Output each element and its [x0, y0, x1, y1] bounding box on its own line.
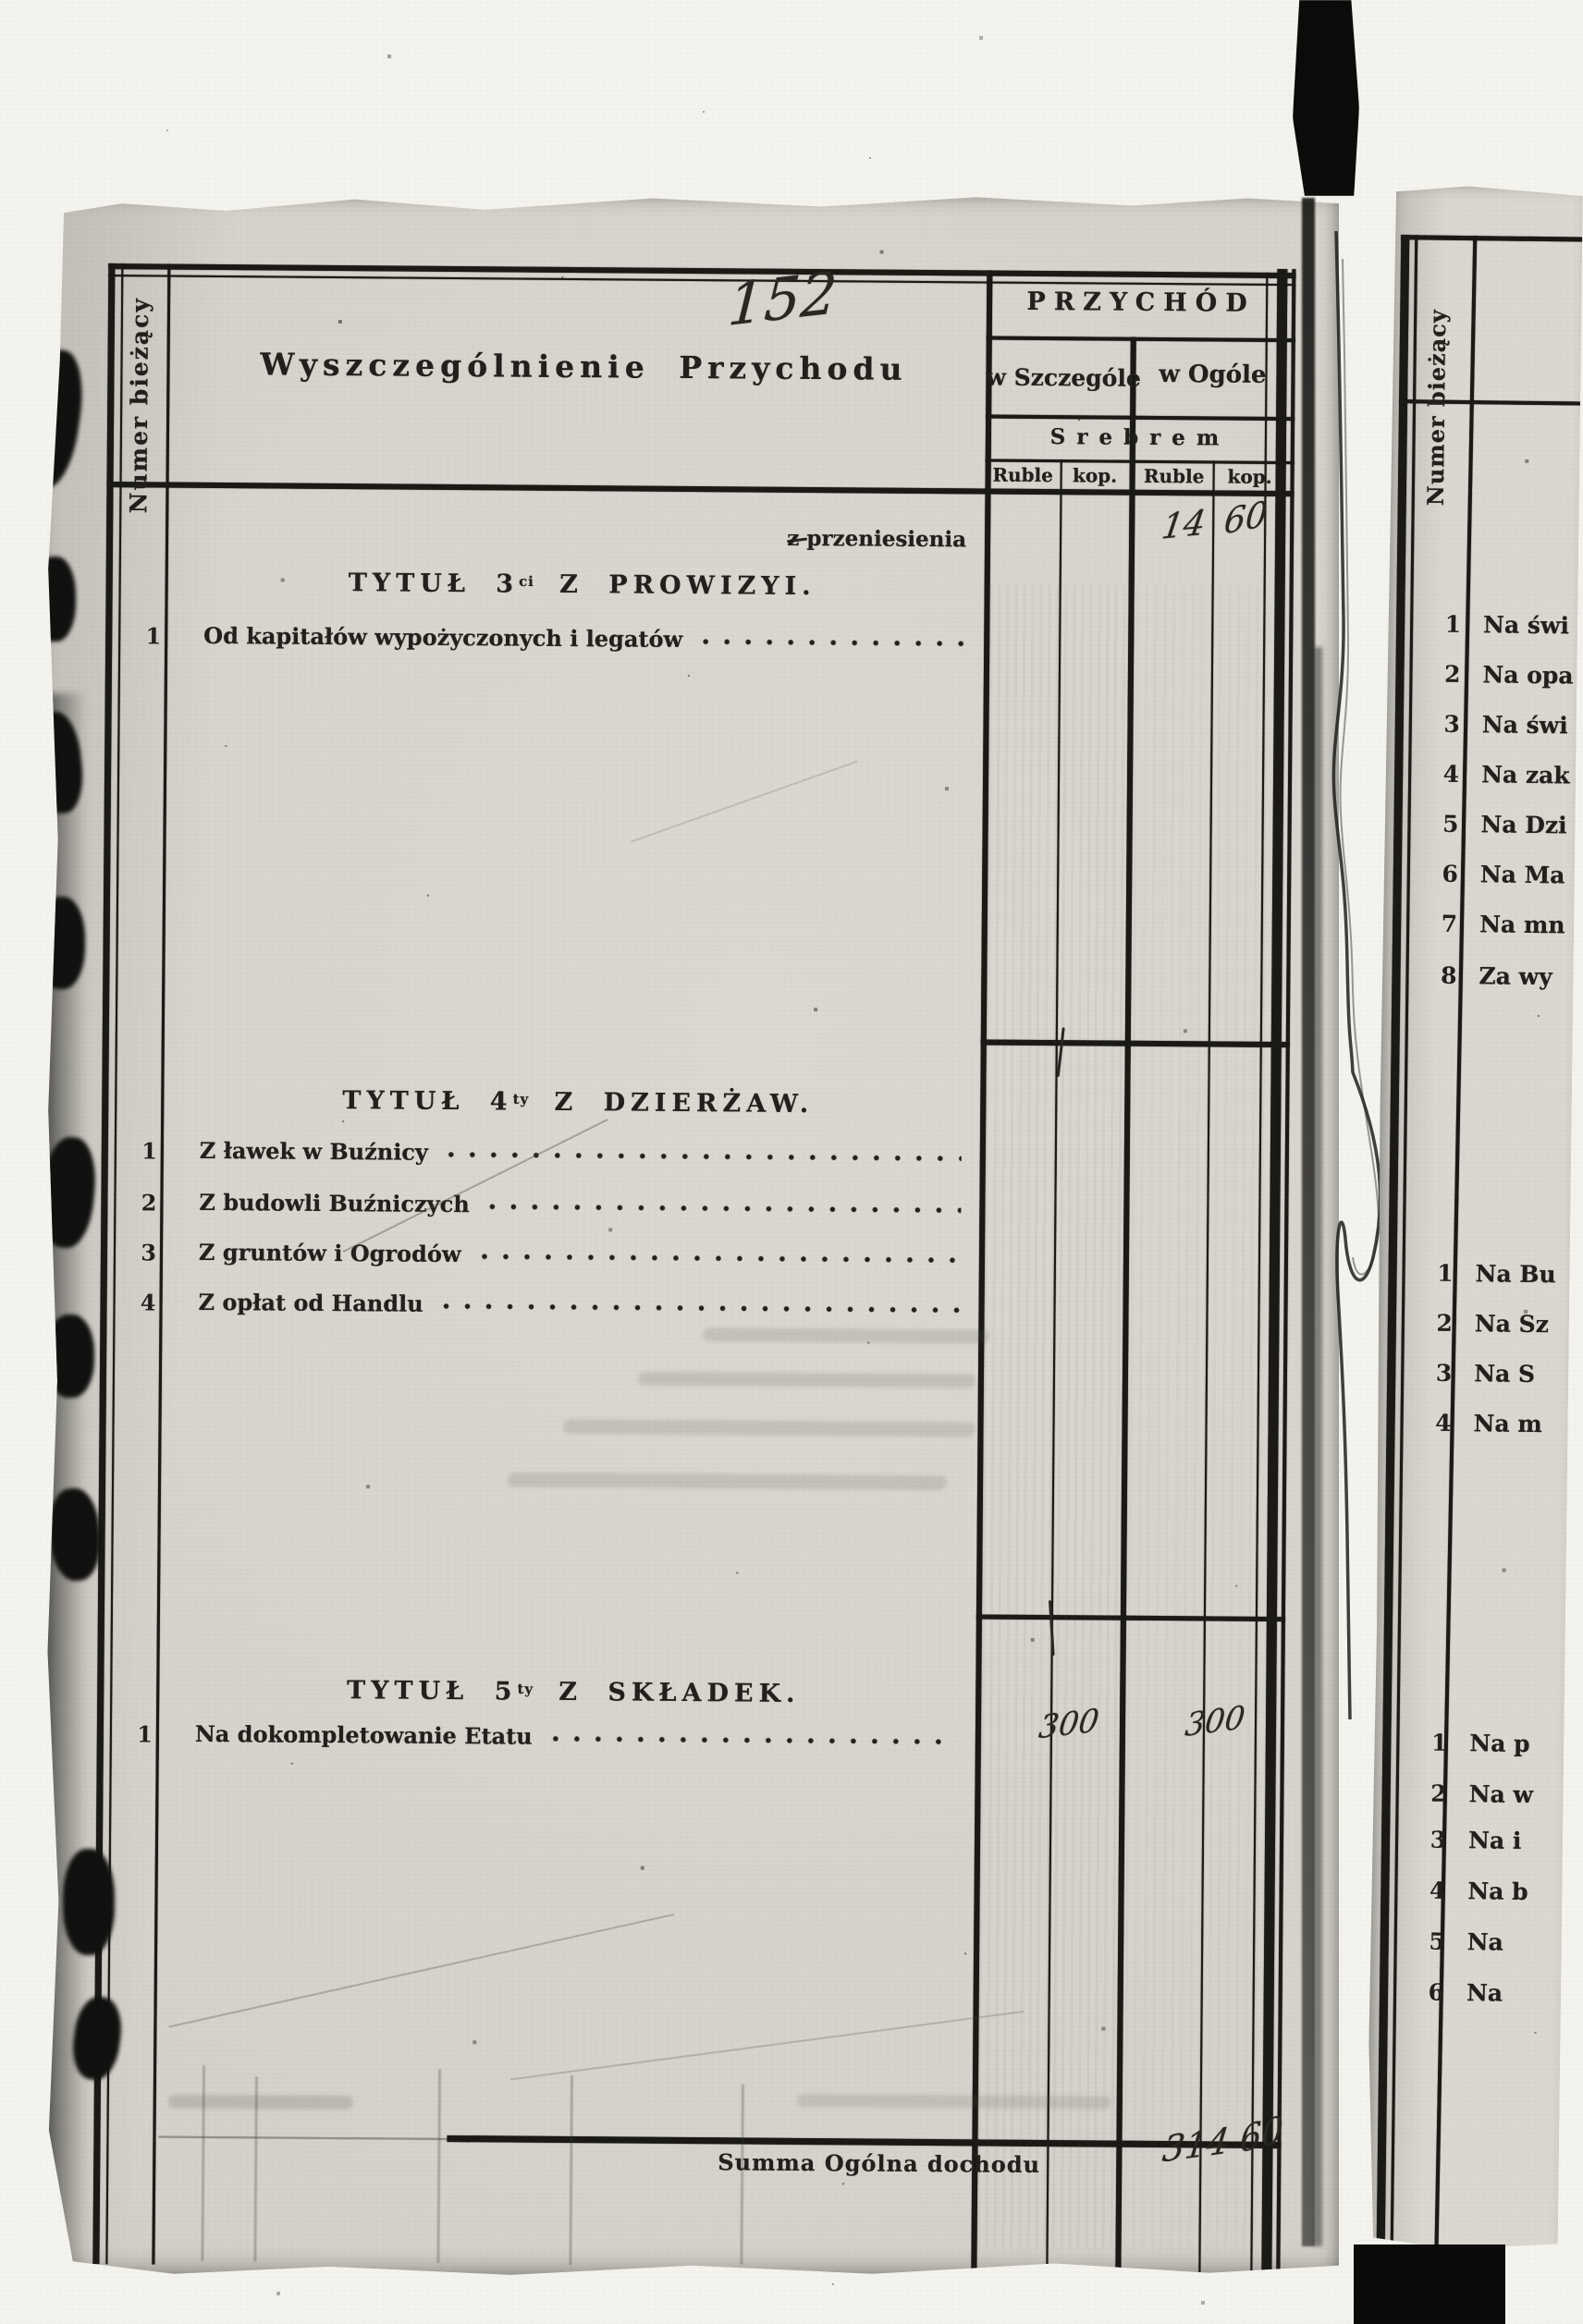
- paper-grain-strip: [1123, 586, 1290, 2251]
- right-page: Numer bieżący 1 Na świ 2 Na opa 3 Na świ…: [1366, 181, 1583, 2252]
- section4-title-prefix: TYTUŁ 4: [342, 1086, 513, 1116]
- item-number: 6: [1413, 1978, 1444, 2005]
- item-label-fragment: Za wy: [1479, 962, 1552, 990]
- ledger-row: Z opłat od Handlu: [198, 1284, 963, 1322]
- col-in-detail: w Szczególe: [986, 364, 1130, 392]
- ledger-row: Na dokompletowanie Etatu: [195, 1716, 961, 1754]
- dotted-leader: [547, 1730, 957, 1749]
- dotted-leader: [697, 632, 965, 651]
- item-number: 1: [122, 622, 161, 649]
- bleed-through-text: [637, 1372, 976, 1388]
- table-border-left: [92, 263, 115, 2264]
- item-label-fragment: Na mn: [1479, 911, 1565, 938]
- bleed-through-line: [436, 2069, 441, 2263]
- bleed-through-text: [702, 1327, 990, 1343]
- scanned-ledger-photo: Numer bieżący Wyszczególnienie Przychodu…: [0, 0, 1583, 2324]
- ledger-row: Z budowli Buźniczych: [199, 1184, 964, 1222]
- dust-speckles: [44, 190, 46, 191]
- item-number: 2: [1416, 1780, 1447, 1806]
- scratch-mark: [510, 2011, 1024, 2081]
- torn-edge-fragment: [33, 557, 76, 642]
- item-label: Z budowli Buźniczych: [199, 1189, 470, 1217]
- unit-ruble-total: Ruble: [1135, 465, 1213, 488]
- item-number: 4: [117, 1289, 155, 1315]
- section3-title-rest: Z PROWIZYI.: [559, 570, 816, 601]
- binding-strip-bottom: [1354, 2244, 1505, 2324]
- item-label-fragment: Na m: [1473, 1410, 1542, 1437]
- item-number: 7: [1426, 911, 1457, 937]
- item-label-fragment: Na S: [1474, 1360, 1535, 1388]
- item-number: 3: [1429, 711, 1460, 738]
- item-number: 1: [118, 1137, 157, 1164]
- item-number: 5: [1427, 811, 1458, 838]
- item-label-fragment: Na zak: [1481, 761, 1570, 789]
- item-number: 2: [1421, 1309, 1453, 1336]
- section3-title-ordinal: ci: [519, 573, 534, 590]
- item-number: 5: [1414, 1927, 1445, 1954]
- dotted-leader: [485, 1197, 962, 1217]
- section5-title: TYTUŁ 5ty Z SKŁADEK.: [171, 1675, 976, 1710]
- item-label: Z opłat od Handlu: [198, 1289, 423, 1317]
- item-number: 1: [1416, 1729, 1447, 1755]
- bleed-through-line: [201, 2065, 205, 2261]
- item-number: 3: [1415, 1826, 1446, 1853]
- dust-speckles: [1391, 181, 1393, 183]
- item-label-fragment: Na: [1467, 1928, 1503, 1955]
- item-label-fragment: Na świ: [1482, 711, 1568, 739]
- item-number: 4: [1419, 1409, 1451, 1436]
- scratch-mark: [631, 761, 858, 843]
- section3-title-prefix: TYTUŁ 3: [349, 569, 520, 598]
- folio-number-handwritten: 152: [726, 259, 839, 339]
- item-number: 6: [1427, 861, 1458, 887]
- scratch-mark: [168, 1914, 674, 2028]
- torn-edge-fragment: [63, 1849, 115, 1955]
- carryover-kop-handwritten: 60: [1217, 492, 1275, 544]
- item-label-fragment: Na Dzi: [1480, 811, 1566, 838]
- left-page-content: Numer bieżący Wyszczególnienie Przychodu…: [28, 190, 1339, 2281]
- item-label: Z gruntów i Ogrodów: [199, 1239, 461, 1267]
- unit-ruble-detail: Ruble: [986, 464, 1061, 487]
- item-label-fragment: Na b: [1467, 1878, 1528, 1905]
- section3-title: TYTUŁ 3ci Z PROWIZYI.: [180, 568, 985, 603]
- item-label-fragment: Na świ: [1483, 611, 1569, 639]
- item-label: Od kapitałów wypożyczonych i legatów: [203, 622, 682, 653]
- item-label-fragment: Na opa: [1482, 661, 1573, 689]
- unit-kop-total: kop.: [1213, 465, 1287, 488]
- ledger-row: Z gruntów i Ogrodów: [199, 1234, 964, 1272]
- currency-row-label: Srebrem: [986, 424, 1295, 452]
- item-label: Z ławek w Buźnicy: [200, 1137, 428, 1166]
- description-header: Wyszczególnienie Przychodu: [181, 346, 986, 388]
- section4-title: TYTUŁ 4ty Z DZIERŻAW.: [176, 1085, 980, 1120]
- section4-title-ordinal: ty: [513, 1091, 530, 1107]
- item-number: 8: [1425, 962, 1456, 989]
- item-number: 2: [1429, 661, 1460, 688]
- bleed-through-text: [507, 1472, 948, 1490]
- item-number: 4: [1414, 1877, 1445, 1903]
- dust-speckles: [0, 0, 2, 2]
- item-number: 3: [117, 1239, 156, 1266]
- bleed-through-line: [569, 2075, 573, 2265]
- dotted-leader: [475, 1247, 961, 1267]
- item-number: 3: [1420, 1359, 1452, 1386]
- section5-title-ordinal: ty: [517, 1681, 534, 1697]
- torn-edge-fragment: [46, 1315, 94, 1398]
- item-label: Na dokompletowanie Etatu: [195, 1720, 533, 1750]
- przychod-row-rule: [987, 336, 1295, 343]
- unit-kop-detail: kop.: [1061, 464, 1130, 487]
- section4-title-rest: Z DZIERŻAW.: [554, 1088, 814, 1119]
- item-number: 4: [1428, 761, 1459, 788]
- bleed-through-text: [167, 2095, 354, 2110]
- carryover-ruble-handwritten: 14: [1153, 502, 1214, 548]
- dotted-leader: [438, 1297, 961, 1317]
- bleed-through-text: [563, 1419, 976, 1437]
- income-header: PRZYCHÓD: [987, 287, 1295, 319]
- table-border-top: [1401, 235, 1582, 241]
- torn-edge-fragment: [37, 897, 85, 989]
- bleed-through-line: [253, 2076, 258, 2261]
- item-label-fragment: Na Bu: [1475, 1260, 1555, 1288]
- subcols-row-rule: [986, 415, 1295, 422]
- carryover-label: z przeniesienia: [689, 525, 966, 552]
- section5-title-prefix: TYTUŁ 5: [347, 1676, 518, 1706]
- item-label-fragment: Na i: [1468, 1827, 1522, 1854]
- row-number-column-label: Numer bieżący: [125, 285, 154, 525]
- item-label-fragment: Na p: [1469, 1730, 1530, 1757]
- row-number-column-label: Numer bieżący: [1421, 291, 1450, 522]
- col-in-total: w Ogóle: [1130, 361, 1295, 389]
- item-number: 1: [1421, 1259, 1453, 1286]
- binding-strip-top: [1293, 0, 1359, 196]
- item-label-fragment: Na Sz: [1475, 1310, 1549, 1338]
- item-label-fragment: Na Ma: [1480, 861, 1565, 888]
- item-label-fragment: Na: [1466, 1979, 1503, 2006]
- paper-grain-strip: [977, 585, 1127, 2250]
- ledger-row: Od kapitałów wypożyczonych i legatów: [203, 618, 969, 655]
- section5-title-rest: Z SKŁADEK.: [558, 1678, 800, 1708]
- left-page: Numer bieżący Wyszczególnienie Przychodu…: [44, 194, 1339, 2276]
- item-number: 2: [117, 1189, 156, 1216]
- summary-label: Summa Ogólna dochodu: [718, 2148, 986, 2177]
- ledger-row: Z ławek w Buźnicy: [200, 1132, 965, 1170]
- item-number: 1: [1430, 611, 1461, 638]
- gutter-shadow: [1302, 198, 1315, 2246]
- item-label-fragment: Na w: [1469, 1780, 1534, 1808]
- item-number: 1: [114, 1720, 153, 1747]
